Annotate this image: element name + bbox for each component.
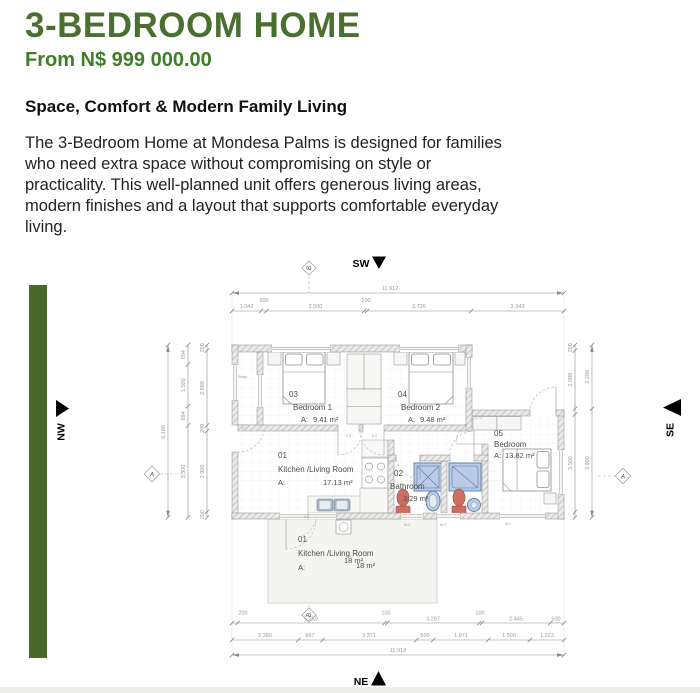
dim-bottom-r2: 600	[420, 633, 429, 639]
dim-bottom-r2: 2.380	[258, 633, 272, 639]
door-code: 0.1	[304, 515, 309, 519]
bedroom1-number: 03	[289, 390, 298, 399]
dim-right-outer: 3.900	[585, 456, 591, 470]
dim-left-inner: 200	[200, 510, 206, 519]
stove	[362, 458, 388, 488]
compass-se-arrow-icon	[663, 399, 681, 416]
patio-area-prefix: A:	[298, 563, 305, 572]
compass-ne: NE	[354, 671, 386, 688]
ensuite-toilet	[452, 489, 466, 514]
dim-left-total: 6.188	[161, 425, 167, 439]
living-name: Kitchen /Living Room	[278, 465, 354, 474]
ensuite-basin	[468, 499, 481, 512]
living-number: 01	[278, 451, 287, 460]
door-code: 0.2	[346, 434, 351, 438]
window-code: W.2	[440, 523, 446, 527]
bedroom1-name: Bedroom 1	[293, 403, 333, 412]
dim-left-mid: 694	[181, 350, 187, 359]
compass-sw-label: SW	[353, 258, 370, 270]
bathroom-name: Bathroom	[390, 482, 425, 491]
compass-se: SE	[663, 399, 681, 437]
page-title: 3-BEDROOM HOME	[25, 6, 361, 46]
listing-page: 3-BEDROOM HOME From N$ 999 000.00 Space,…	[0, 0, 700, 693]
compass-nw: NW	[56, 400, 70, 441]
bathroom-number: 02	[394, 469, 403, 478]
dim-bottom-r1: 100	[381, 611, 390, 617]
dim-bottom-r2: 1.223	[540, 633, 554, 639]
description-line: who need extra space without compromisin…	[25, 154, 665, 175]
dim-bottom-r2: 1.500	[502, 633, 516, 639]
dim-top-wall: 100	[361, 298, 370, 304]
dim-bottom-r1: 100	[475, 611, 484, 617]
patio-area-shadow: 18 m²	[356, 561, 376, 570]
dimensions-left: 6.188 694 1.500 694 3.300 200 2.688 200 …	[161, 343, 209, 520]
price: From N$ 999 000.00	[25, 49, 212, 72]
floor-plan-svg: SW NE NW SE B B A	[0, 248, 700, 693]
compass-sw-arrow-icon	[372, 257, 386, 270]
dim-left-inner: 2.900	[200, 465, 206, 479]
description-line: modern finishes and a layout that suppor…	[25, 196, 665, 217]
dim-right-outer: 2.288	[585, 370, 591, 384]
description-line: The 3-Bedroom Home at Mondesa Palms is d…	[25, 133, 665, 154]
dim-right-inner: 200	[568, 343, 574, 352]
dim-top-seg: 1.042	[240, 304, 254, 310]
stoep-label: Stoep	[238, 375, 247, 379]
window-code: W.1	[505, 522, 511, 526]
dim-left-mid: 3.300	[181, 465, 187, 479]
section-b-label: B	[307, 266, 313, 270]
dim-bottom-r1: 500	[551, 617, 560, 623]
dim-bottom-r1: 3.297	[426, 617, 440, 623]
section-a-label: A	[620, 474, 625, 480]
living-area: 17.13 m²	[323, 478, 353, 487]
bedroom3-number: 05	[494, 429, 503, 438]
subtitle: Space, Comfort & Modern Family Living	[25, 97, 347, 117]
bedroom2-name: Bedroom 2	[401, 403, 441, 412]
compass-ne-arrow-icon	[371, 671, 386, 686]
bedroom2-area: 9.48 m²	[420, 415, 446, 424]
drain-box	[336, 520, 351, 534]
description-line: living.	[25, 217, 665, 238]
bedroom1-area-prefix: A:	[301, 415, 308, 424]
door-code: 0.1	[242, 427, 247, 431]
dim-bottom-r1: 200	[238, 611, 247, 617]
section-marker-a-right: A	[598, 468, 631, 484]
living-area-prefix: A:	[278, 478, 285, 487]
closet-row-bedroom3	[473, 417, 521, 431]
section-marker-a-left: A	[144, 466, 186, 482]
patio: 01 Kitchen /Living Room A: 18 m² 18 m²	[268, 519, 437, 603]
dim-left-inner: 200	[200, 343, 206, 352]
dim-top-seg: 3.343	[511, 304, 525, 310]
dim-bottom-r1: 5.269	[304, 617, 318, 623]
bedroom3-area: 13.82 m²	[505, 451, 535, 460]
bedroom2-number: 04	[398, 390, 407, 399]
section-marker-b-top: B	[302, 261, 316, 293]
dim-left-inner: 2.688	[200, 381, 206, 395]
compass-nw-label: NW	[56, 423, 68, 441]
door-code: 0.2	[372, 434, 377, 438]
bedroom3-name: Bedroom	[494, 440, 527, 449]
bedroom3-area-prefix: A:	[494, 451, 501, 460]
dim-top-total: 11.912	[382, 286, 398, 292]
bed-2	[409, 352, 453, 404]
dim-top-seg: 3.500	[309, 304, 323, 310]
dim-bottom-r2: 1.971	[454, 633, 468, 639]
bedroom1-area: 9.41 m²	[313, 415, 339, 424]
dim-right-inner: 3.500	[568, 456, 574, 470]
compass-se-label: SE	[665, 423, 677, 437]
compass-sw: SW	[353, 257, 386, 271]
window-code: W.2	[404, 523, 410, 527]
compass-nw-arrow-icon	[56, 400, 69, 417]
section-a-label: A	[149, 472, 154, 478]
dim-bottom-r1: 2.445	[509, 617, 523, 623]
dim-left-inner: 200	[200, 424, 206, 433]
bathroom-area: 3.29 m²	[403, 494, 429, 503]
dim-bottom-r2: 3.371	[362, 633, 376, 639]
description-line: practicality. This well-planned unit off…	[25, 175, 665, 196]
dim-top-seg: 3.726	[412, 304, 426, 310]
wardrobes-center	[347, 354, 381, 424]
description-text: The 3-Bedroom Home at Mondesa Palms is d…	[25, 133, 665, 238]
bedroom2-area-prefix: A:	[408, 415, 415, 424]
dim-top-wall: 200	[259, 298, 268, 304]
dim-bottom-total: 11.912	[390, 648, 406, 654]
dim-bottom-r2: 867	[305, 633, 314, 639]
bottom-strip	[0, 687, 700, 693]
dim-left-mid: 694	[181, 411, 187, 420]
patio-number: 01	[298, 535, 307, 544]
dimensions-right: 200 2.088 3.500 2.288 3.900	[568, 343, 594, 520]
dim-left-mid: 1.500	[181, 378, 187, 392]
ensuite-bathtub	[449, 463, 481, 491]
dim-right-inner: 2.088	[568, 373, 574, 387]
